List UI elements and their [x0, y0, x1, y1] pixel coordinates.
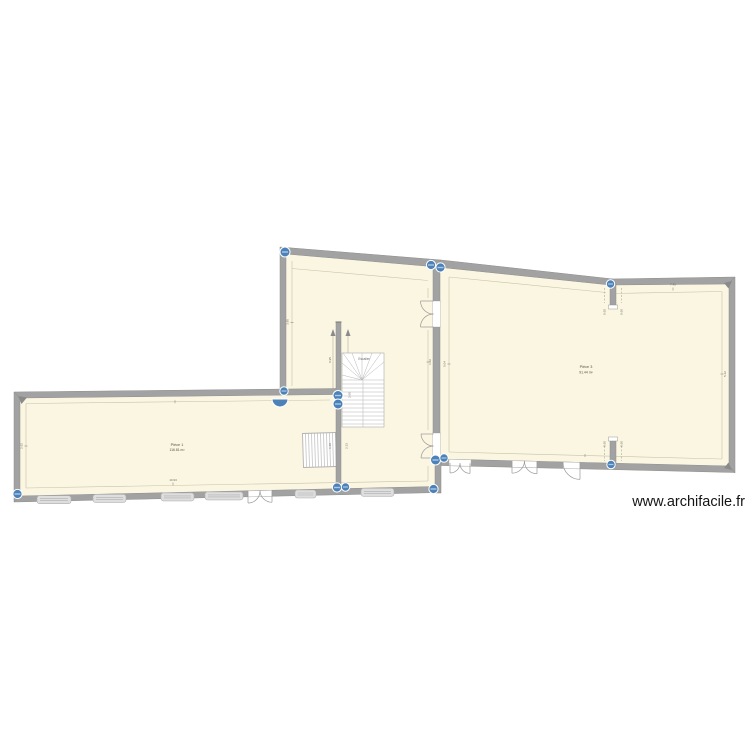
svg-text:0.60: 0.60 [620, 309, 624, 315]
window-5[interactable] [295, 490, 316, 498]
window-6[interactable] [361, 488, 394, 496]
svg-text:3.95: 3.95 [286, 319, 290, 325]
watermark-url: www.archifacile.fr [631, 494, 745, 510]
stub-bottom-cap [609, 437, 618, 441]
wall-right-side[interactable] [729, 277, 735, 473]
handle-bottom-junction-b[interactable] [341, 483, 349, 491]
stair-label: Escalier [358, 357, 370, 361]
window-4[interactable] [205, 492, 243, 500]
window-1[interactable] [37, 496, 71, 504]
handle-left-bottomleft[interactable] [13, 489, 22, 498]
svg-text:0.95: 0.95 [328, 357, 332, 363]
handle-stub-top[interactable] [606, 280, 614, 288]
floorplan-svg: Escalier [0, 0, 750, 750]
svg-text:7.45: 7.45 [670, 283, 676, 287]
svg-text:5.12: 5.12 [723, 371, 727, 377]
handle-middle-topright-b[interactable] [436, 263, 445, 272]
handle-middle-topleft[interactable] [280, 247, 290, 257]
handle-right-bottomleft-a[interactable] [431, 455, 441, 465]
svg-text:1.10: 1.10 [328, 443, 332, 449]
door-gap-mid-lower [433, 433, 441, 458]
handle-stub-bottom[interactable] [607, 460, 615, 468]
handle-bottom-junction-a[interactable] [332, 483, 341, 492]
floorplan-canvas: Escalier [0, 0, 750, 750]
room-left-name: Pièce 1 [171, 443, 184, 447]
svg-text:5.04: 5.04 [443, 361, 447, 367]
wall-partition-lower[interactable] [433, 327, 440, 433]
svg-text:2.62: 2.62 [20, 443, 24, 449]
room-right-name: Pièce 3 [580, 365, 593, 369]
stair-upper-flight[interactable]: Escalier [342, 353, 384, 427]
handle-right-bottomleft-b[interactable] [440, 454, 448, 462]
stair-lower-flight[interactable] [303, 433, 337, 468]
svg-text:0.60: 0.60 [603, 441, 607, 447]
window-2[interactable] [93, 494, 126, 502]
door-gap-mid-upper [433, 301, 441, 327]
door-gap-right3 [563, 462, 580, 469]
stub-top-cap [609, 305, 618, 309]
handle-left-bottomright[interactable] [429, 484, 438, 493]
svg-text:10.93: 10.93 [169, 478, 177, 482]
svg-text:2.33: 2.33 [345, 443, 349, 449]
svg-text:1.02: 1.02 [428, 359, 432, 365]
svg-text:0.60: 0.60 [603, 309, 607, 315]
handle-middle-bottomleft[interactable] [280, 387, 288, 395]
handle-stair-junction-b[interactable] [333, 399, 343, 409]
room-right-area: 91.44 m² [579, 371, 593, 375]
room-left-area: 116.81 m² [169, 448, 185, 452]
svg-text:0.60: 0.60 [620, 441, 624, 447]
svg-text:2.60: 2.60 [348, 392, 352, 398]
window-3[interactable] [161, 493, 194, 501]
handle-middle-topright-a[interactable] [426, 260, 435, 269]
